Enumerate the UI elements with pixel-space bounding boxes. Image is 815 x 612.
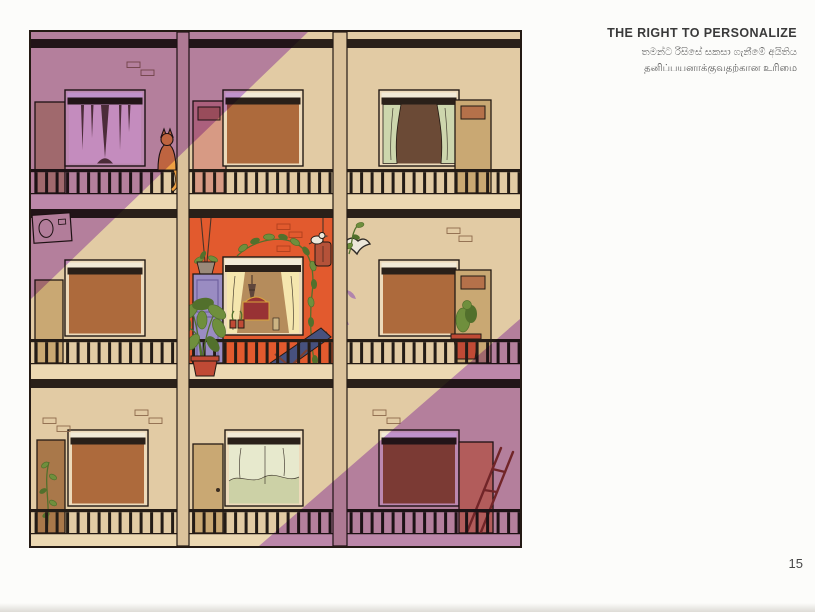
window-middle-right bbox=[379, 260, 459, 336]
page-number: 15 bbox=[789, 556, 803, 571]
apartment-facade-illustration bbox=[31, 32, 520, 546]
subtitle-tamil: தனிப்பயனாக்குவதற்கான உரிமை bbox=[607, 61, 797, 77]
page-bottom-edge bbox=[0, 603, 815, 612]
window-bottom-left bbox=[68, 430, 148, 506]
window-bottom-middle bbox=[225, 430, 303, 506]
heading: THE RIGHT TO PERSONALIZE තමන්ට රිසිසේ සක… bbox=[607, 26, 797, 76]
window-middle-left bbox=[65, 260, 145, 336]
page-title: THE RIGHT TO PERSONALIZE bbox=[607, 26, 797, 40]
window-top-right bbox=[379, 90, 459, 166]
illustration-panel bbox=[29, 30, 522, 548]
subtitle-sinhala: තමන්ට රිසිසේ සකසා ගැනීමේ අයිතිය bbox=[607, 45, 797, 61]
book-page: THE RIGHT TO PERSONALIZE තමන්ට රිසිසේ සක… bbox=[0, 0, 815, 612]
shrine bbox=[243, 302, 269, 320]
window-center-lit bbox=[223, 257, 303, 335]
